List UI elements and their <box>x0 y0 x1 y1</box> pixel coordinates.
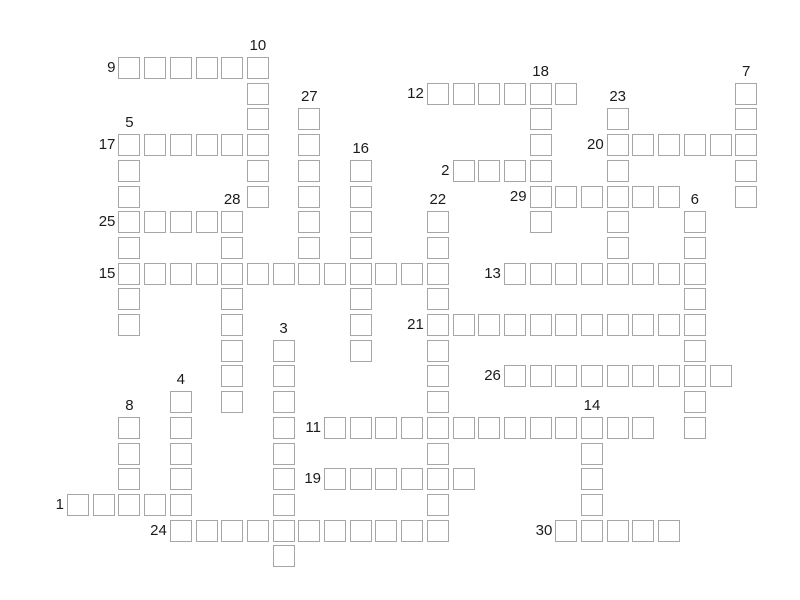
clue-number-1: 1 <box>56 494 64 516</box>
crossword-cell[interactable] <box>247 263 269 285</box>
crossword-cell[interactable] <box>221 288 243 310</box>
crossword-cell[interactable] <box>298 160 320 182</box>
crossword-cell[interactable] <box>324 520 346 542</box>
clue-number-7: 7 <box>742 62 750 82</box>
crossword-cell[interactable] <box>530 417 552 439</box>
clue-number-19: 19 <box>304 468 321 490</box>
crossword-cell[interactable] <box>375 468 397 490</box>
clue-number-13: 13 <box>484 263 501 285</box>
clue-number-2: 2 <box>441 160 449 182</box>
crossword-cell[interactable] <box>684 314 706 336</box>
crossword-cell[interactable] <box>632 314 654 336</box>
crossword-cell[interactable] <box>427 340 449 362</box>
crossword-cell[interactable] <box>555 263 577 285</box>
crossword-cell[interactable] <box>324 468 346 490</box>
crossword-cell[interactable] <box>298 263 320 285</box>
crossword-cell[interactable] <box>555 314 577 336</box>
crossword-cell[interactable] <box>350 520 372 542</box>
crossword-cell[interactable] <box>221 263 243 285</box>
crossword-cell[interactable] <box>273 417 295 439</box>
clue-number-29: 29 <box>510 186 527 208</box>
crossword-cell[interactable] <box>170 263 192 285</box>
crossword-cell[interactable] <box>530 263 552 285</box>
crossword-grid: 1234567891011121314151617181920212223242… <box>0 0 800 600</box>
crossword-cell[interactable] <box>581 314 603 336</box>
crossword-cell[interactable] <box>581 186 603 208</box>
crossword-cell[interactable] <box>350 160 372 182</box>
crossword-cell[interactable] <box>273 520 295 542</box>
crossword-cell[interactable] <box>298 134 320 156</box>
crossword-cell[interactable] <box>684 365 706 387</box>
crossword-cell[interactable] <box>478 83 500 105</box>
crossword-cell[interactable] <box>555 417 577 439</box>
clue-number-14: 14 <box>584 396 601 416</box>
crossword-cell[interactable] <box>658 365 680 387</box>
crossword-cell[interactable] <box>632 520 654 542</box>
crossword-cell[interactable] <box>632 365 654 387</box>
crossword-cell[interactable] <box>658 186 680 208</box>
crossword-cell[interactable] <box>632 263 654 285</box>
clue-number-15: 15 <box>99 263 116 285</box>
crossword-cell[interactable] <box>196 57 218 79</box>
crossword-cell[interactable] <box>247 57 269 79</box>
crossword-cell[interactable] <box>504 160 526 182</box>
crossword-cell[interactable] <box>196 211 218 233</box>
crossword-cell[interactable] <box>221 134 243 156</box>
crossword-cell[interactable] <box>735 108 757 130</box>
crossword-cell[interactable] <box>735 83 757 105</box>
crossword-cell[interactable] <box>144 263 166 285</box>
crossword-cell[interactable] <box>247 83 269 105</box>
crossword-cell[interactable] <box>273 263 295 285</box>
crossword-cell[interactable] <box>453 83 475 105</box>
crossword-cell[interactable] <box>247 108 269 130</box>
crossword-cell[interactable] <box>427 83 449 105</box>
clue-number-5: 5 <box>125 113 133 133</box>
crossword-cell[interactable] <box>118 443 140 465</box>
crossword-cell[interactable] <box>144 494 166 516</box>
crossword-cell[interactable] <box>118 211 140 233</box>
crossword-cell[interactable] <box>735 186 757 208</box>
crossword-cell[interactable] <box>504 314 526 336</box>
crossword-cell[interactable] <box>504 365 526 387</box>
crossword-cell[interactable] <box>247 186 269 208</box>
crossword-cell[interactable] <box>530 108 552 130</box>
crossword-cell[interactable] <box>684 391 706 413</box>
crossword-cell[interactable] <box>118 57 140 79</box>
clue-number-3: 3 <box>279 319 287 339</box>
crossword-cell[interactable] <box>453 417 475 439</box>
crossword-cell[interactable] <box>581 494 603 516</box>
crossword-cell[interactable] <box>684 134 706 156</box>
crossword-cell[interactable] <box>170 520 192 542</box>
crossword-cell[interactable] <box>427 417 449 439</box>
crossword-cell[interactable] <box>221 314 243 336</box>
crossword-cell[interactable] <box>170 57 192 79</box>
crossword-cell[interactable] <box>632 417 654 439</box>
crossword-cell[interactable] <box>221 340 243 362</box>
crossword-cell[interactable] <box>735 160 757 182</box>
crossword-cell[interactable] <box>118 263 140 285</box>
crossword-cell[interactable] <box>684 288 706 310</box>
crossword-cell[interactable] <box>118 160 140 182</box>
crossword-cell[interactable] <box>170 443 192 465</box>
crossword-cell[interactable] <box>555 365 577 387</box>
clue-number-9: 9 <box>107 57 115 79</box>
crossword-cell[interactable] <box>658 314 680 336</box>
crossword-cell[interactable] <box>144 134 166 156</box>
crossword-cell[interactable] <box>298 520 320 542</box>
clue-number-25: 25 <box>99 211 116 233</box>
crossword-cell[interactable] <box>530 186 552 208</box>
crossword-cell[interactable] <box>478 417 500 439</box>
crossword-cell[interactable] <box>401 520 423 542</box>
crossword-cell[interactable] <box>118 494 140 516</box>
crossword-cell[interactable] <box>427 314 449 336</box>
crossword-cell[interactable] <box>273 365 295 387</box>
crossword-cell[interactable] <box>350 211 372 233</box>
crossword-cell[interactable] <box>221 520 243 542</box>
crossword-cell[interactable] <box>530 160 552 182</box>
crossword-cell[interactable] <box>350 417 372 439</box>
crossword-cell[interactable] <box>684 417 706 439</box>
crossword-cell[interactable] <box>607 134 629 156</box>
crossword-cell[interactable] <box>298 108 320 130</box>
crossword-cell[interactable] <box>453 160 475 182</box>
crossword-cell[interactable] <box>504 417 526 439</box>
crossword-cell[interactable] <box>684 211 706 233</box>
clue-number-4: 4 <box>177 370 185 390</box>
crossword-cell[interactable] <box>504 263 526 285</box>
clue-number-23: 23 <box>609 87 626 107</box>
crossword-cell[interactable] <box>375 520 397 542</box>
crossword-cell[interactable] <box>581 468 603 490</box>
crossword-cell[interactable] <box>375 417 397 439</box>
crossword-cell[interactable] <box>555 520 577 542</box>
crossword-cell[interactable] <box>221 211 243 233</box>
crossword-cell[interactable] <box>735 134 757 156</box>
clue-number-28: 28 <box>224 190 241 210</box>
crossword-cell[interactable] <box>298 211 320 233</box>
crossword-cell[interactable] <box>196 520 218 542</box>
crossword-cell[interactable] <box>504 83 526 105</box>
crossword-cell[interactable] <box>273 494 295 516</box>
crossword-cell[interactable] <box>607 160 629 182</box>
clue-number-12: 12 <box>407 83 424 105</box>
crossword-cell[interactable] <box>298 237 320 259</box>
crossword-cell[interactable] <box>581 520 603 542</box>
crossword-cell[interactable] <box>530 211 552 233</box>
crossword-cell[interactable] <box>67 494 89 516</box>
crossword-cell[interactable] <box>427 468 449 490</box>
crossword-cell[interactable] <box>607 263 629 285</box>
crossword-cell[interactable] <box>427 365 449 387</box>
crossword-cell[interactable] <box>581 365 603 387</box>
crossword-cell[interactable] <box>427 211 449 233</box>
clue-number-24: 24 <box>150 520 167 542</box>
crossword-cell[interactable] <box>118 237 140 259</box>
crossword-cell[interactable] <box>427 237 449 259</box>
crossword-cell[interactable] <box>530 314 552 336</box>
crossword-cell[interactable] <box>684 237 706 259</box>
crossword-cell[interactable] <box>144 211 166 233</box>
crossword-cell[interactable] <box>658 263 680 285</box>
crossword-cell[interactable] <box>427 288 449 310</box>
crossword-cell[interactable] <box>375 263 397 285</box>
crossword-cell[interactable] <box>221 391 243 413</box>
crossword-cell[interactable] <box>118 417 140 439</box>
crossword-cell[interactable] <box>273 340 295 362</box>
crossword-cell[interactable] <box>607 211 629 233</box>
crossword-cell[interactable] <box>710 134 732 156</box>
crossword-cell[interactable] <box>350 263 372 285</box>
crossword-cell[interactable] <box>350 186 372 208</box>
crossword-cell[interactable] <box>427 263 449 285</box>
clue-number-22: 22 <box>429 190 446 210</box>
crossword-cell[interactable] <box>658 134 680 156</box>
crossword-cell[interactable] <box>221 365 243 387</box>
crossword-cell[interactable] <box>478 314 500 336</box>
crossword-cell[interactable] <box>581 443 603 465</box>
crossword-cell[interactable] <box>658 520 680 542</box>
crossword-cell[interactable] <box>555 186 577 208</box>
crossword-cell[interactable] <box>273 443 295 465</box>
clue-number-20: 20 <box>587 134 604 156</box>
clue-number-30: 30 <box>536 520 553 542</box>
crossword-cell[interactable] <box>118 314 140 336</box>
crossword-cell[interactable] <box>581 417 603 439</box>
clue-number-8: 8 <box>125 396 133 416</box>
crossword-cell[interactable] <box>710 365 732 387</box>
crossword-cell[interactable] <box>118 288 140 310</box>
clue-number-27: 27 <box>301 87 318 107</box>
clue-number-18: 18 <box>532 62 549 82</box>
crossword-cell[interactable] <box>196 134 218 156</box>
crossword-cell[interactable] <box>93 494 115 516</box>
crossword-cell[interactable] <box>607 417 629 439</box>
clue-number-11: 11 <box>305 417 321 439</box>
crossword-cell[interactable] <box>401 417 423 439</box>
crossword-cell[interactable] <box>273 545 295 567</box>
crossword-cell[interactable] <box>221 237 243 259</box>
crossword-cell[interactable] <box>607 186 629 208</box>
crossword-cell[interactable] <box>170 468 192 490</box>
crossword-cell[interactable] <box>530 83 552 105</box>
crossword-cell[interactable] <box>632 186 654 208</box>
crossword-cell[interactable] <box>118 134 140 156</box>
crossword-cell[interactable] <box>401 468 423 490</box>
clue-number-17: 17 <box>99 134 116 156</box>
crossword-cell[interactable] <box>581 263 603 285</box>
crossword-cell[interactable] <box>684 340 706 362</box>
clue-number-10: 10 <box>250 36 267 56</box>
clue-number-16: 16 <box>352 139 369 159</box>
crossword-cell[interactable] <box>247 520 269 542</box>
crossword-cell[interactable] <box>555 83 577 105</box>
crossword-cell[interactable] <box>170 134 192 156</box>
clue-number-6: 6 <box>691 190 699 210</box>
crossword-cell[interactable] <box>350 340 372 362</box>
crossword-cell[interactable] <box>170 391 192 413</box>
crossword-cell[interactable] <box>427 520 449 542</box>
crossword-cell[interactable] <box>221 57 243 79</box>
crossword-cell[interactable] <box>401 263 423 285</box>
crossword-cell[interactable] <box>530 134 552 156</box>
crossword-cell[interactable] <box>247 134 269 156</box>
crossword-cell[interactable] <box>324 263 346 285</box>
crossword-cell[interactable] <box>350 314 372 336</box>
crossword-cell[interactable] <box>684 263 706 285</box>
crossword-cell[interactable] <box>427 494 449 516</box>
crossword-cell[interactable] <box>170 494 192 516</box>
crossword-cell[interactable] <box>607 237 629 259</box>
crossword-cell[interactable] <box>350 468 372 490</box>
crossword-cell[interactable] <box>350 288 372 310</box>
crossword-cell[interactable] <box>607 365 629 387</box>
crossword-cell[interactable] <box>478 160 500 182</box>
crossword-cell[interactable] <box>607 314 629 336</box>
crossword-cell[interactable] <box>427 391 449 413</box>
crossword-cell[interactable] <box>144 57 166 79</box>
clue-number-21: 21 <box>407 314 424 336</box>
crossword-cell[interactable] <box>170 211 192 233</box>
crossword-cell[interactable] <box>273 468 295 490</box>
crossword-cell[interactable] <box>350 237 372 259</box>
crossword-cell[interactable] <box>530 365 552 387</box>
crossword-cell[interactable] <box>118 468 140 490</box>
crossword-cell[interactable] <box>196 263 218 285</box>
crossword-cell[interactable] <box>298 186 320 208</box>
crossword-cell[interactable] <box>118 186 140 208</box>
crossword-cell[interactable] <box>453 468 475 490</box>
crossword-cell[interactable] <box>453 314 475 336</box>
crossword-cell[interactable] <box>632 134 654 156</box>
crossword-cell[interactable] <box>324 417 346 439</box>
crossword-cell[interactable] <box>607 108 629 130</box>
crossword-cell[interactable] <box>273 391 295 413</box>
crossword-cell[interactable] <box>247 160 269 182</box>
clue-number-26: 26 <box>484 365 501 387</box>
crossword-cell[interactable] <box>427 443 449 465</box>
crossword-cell[interactable] <box>607 520 629 542</box>
crossword-cell[interactable] <box>170 417 192 439</box>
